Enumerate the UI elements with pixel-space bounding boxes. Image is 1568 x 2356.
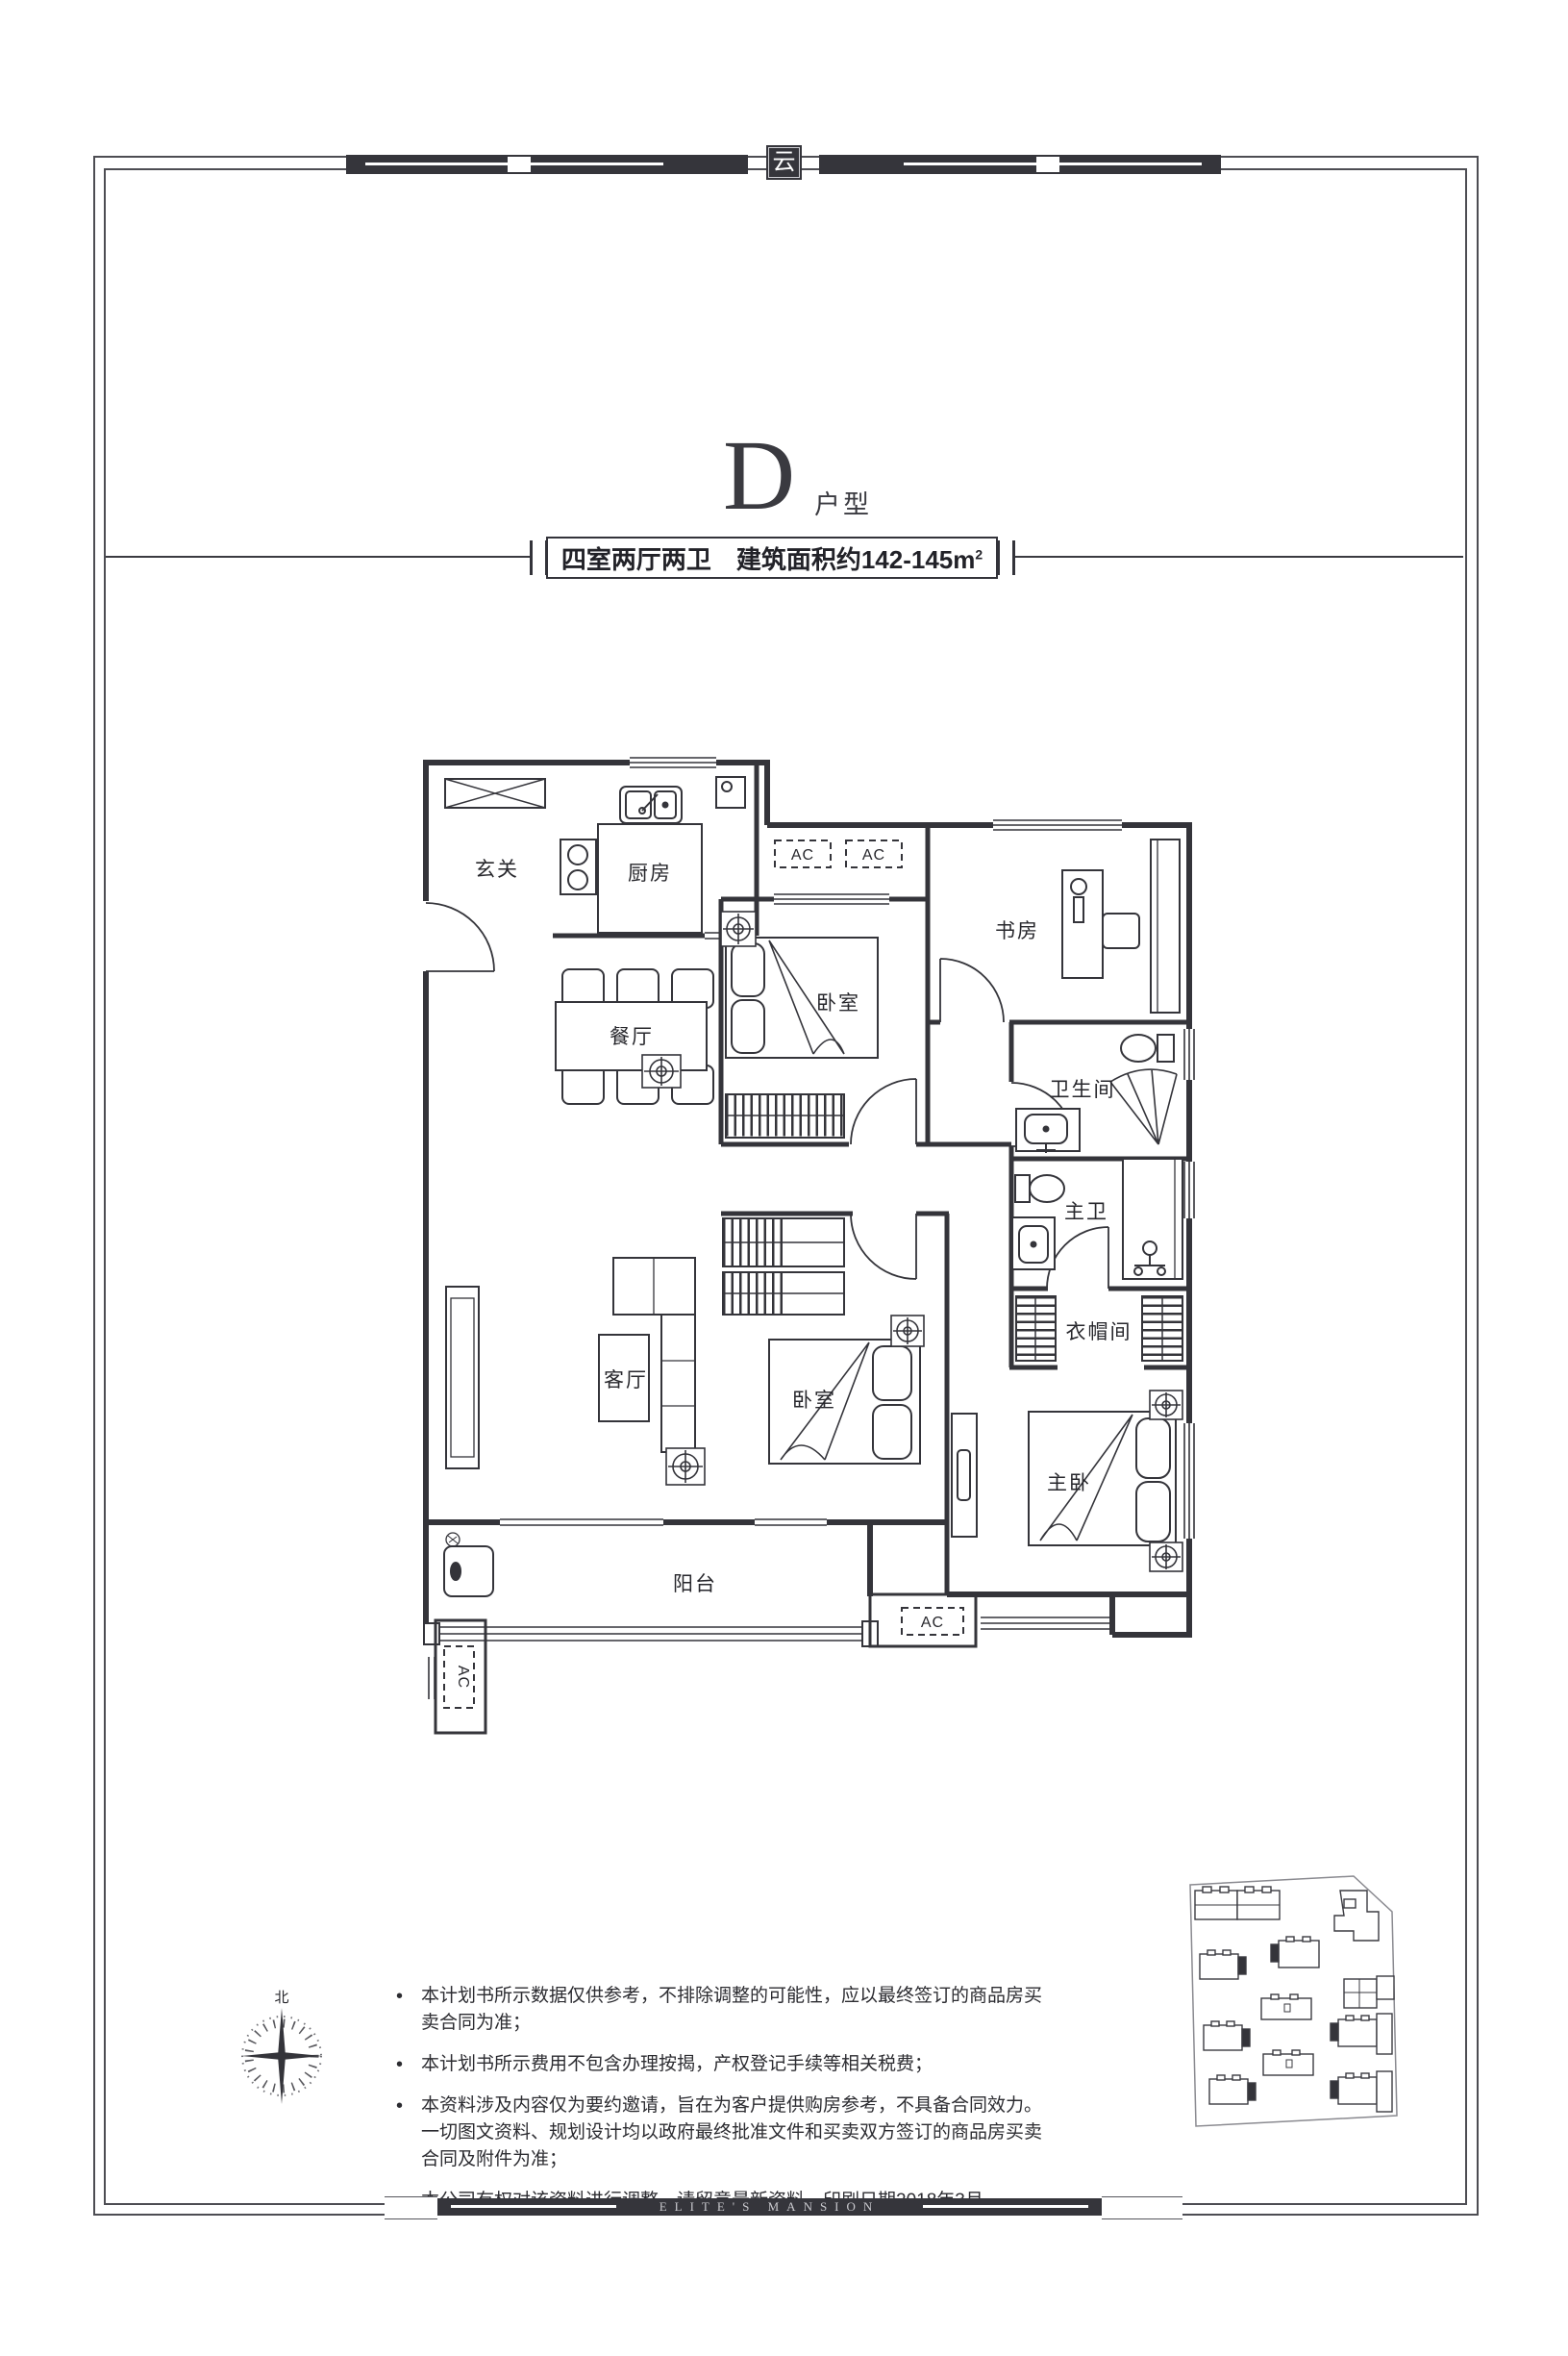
note-text: 本计划书所示费用不包含办理按揭，产权登记手续等相关税费；	[421, 2051, 933, 2078]
study-furniture	[1062, 840, 1180, 1013]
balcony-fixtures	[444, 1533, 493, 1596]
floorplan-brochure-page: { "header": { "plan_letter": "D", "plan_…	[0, 0, 1568, 2356]
note-text: 本资料涉及内容仅为要约邀请，旨在为客户提供购房参考，不具备合同效力。一切图文资料…	[421, 2093, 1058, 2173]
footer-cap-right	[1102, 2196, 1182, 2219]
banner-ornament-right	[997, 540, 1015, 575]
banner-area-text: 建筑面积约142-145m2	[736, 540, 983, 576]
room-label-bathroom: 卫生间	[1050, 1078, 1116, 1101]
note-item: •本计划书所示数据仅供参考，不排除调整的可能性，应以最终签订的商品房买卖合同为准…	[396, 1983, 1058, 2037]
footer-brand-bar: ELITE'S MANSION	[437, 2198, 1102, 2216]
seal-glyph: 云	[768, 147, 800, 178]
plan-letter-suffix: 户型	[814, 484, 872, 521]
compass-north-label: 北	[274, 1990, 288, 2006]
bedroom-top-furniture	[726, 938, 878, 1138]
footer-cap-left	[385, 2196, 437, 2219]
room-label-closet: 衣帽间	[1066, 1320, 1132, 1343]
brand-text: ELITE'S MANSION	[660, 2199, 881, 2215]
note-item: •本计划书所示费用不包含办理按揭，产权登记手续等相关税费；	[396, 2051, 1058, 2078]
compass-icon: 北	[224, 1971, 339, 2112]
disclaimer-notes: •本计划书所示数据仅供参考，不排除调整的可能性，应以最终签订的商品房买卖合同为准…	[396, 1983, 1058, 2229]
brand-seal-icon: 云	[766, 145, 802, 180]
room-label-entry: 玄关	[475, 858, 519, 881]
room-label-bedroom-mid: 卧室	[792, 1389, 836, 1412]
room-label-study: 书房	[995, 919, 1039, 942]
top-ornament-bar-left	[346, 155, 748, 174]
room-label-master-bath: 主卫	[1064, 1200, 1108, 1223]
floor-plan: AC AC AC AC	[413, 721, 1211, 1750]
banner-rooms-text: 四室两厅两卫	[561, 540, 711, 576]
room-label-master: 主卧	[1047, 1471, 1091, 1494]
room-label-dining: 餐厅	[610, 1025, 654, 1048]
top-ornament-bar-right	[819, 155, 1221, 174]
ac-label-3: AC	[921, 1615, 944, 1631]
kitchen-fixtures	[445, 777, 745, 933]
living-room-furniture	[446, 1258, 695, 1468]
plan-letter: D	[723, 426, 795, 526]
room-label-living: 客厅	[604, 1368, 648, 1391]
note-text: 本计划书所示数据仅供参考，不排除调整的可能性，应以最终签订的商品房买卖合同为准；	[421, 1983, 1058, 2037]
note-item: •本资料涉及内容仅为要约邀请，旨在为客户提供购房参考，不具备合同效力。一切图文资…	[396, 2093, 1058, 2173]
site-plan-map	[1175, 1864, 1406, 2138]
ac-label-2: AC	[862, 847, 885, 864]
spec-banner: 四室两厅两卫 建筑面积约142-145m2	[546, 537, 998, 579]
room-label-balcony: 阳台	[673, 1572, 717, 1595]
ac-label-4: AC	[455, 1666, 471, 1689]
room-label-bedroom-top: 卧室	[816, 991, 860, 1015]
room-label-kitchen: 厨房	[628, 862, 672, 885]
ac-label-1: AC	[791, 847, 814, 864]
